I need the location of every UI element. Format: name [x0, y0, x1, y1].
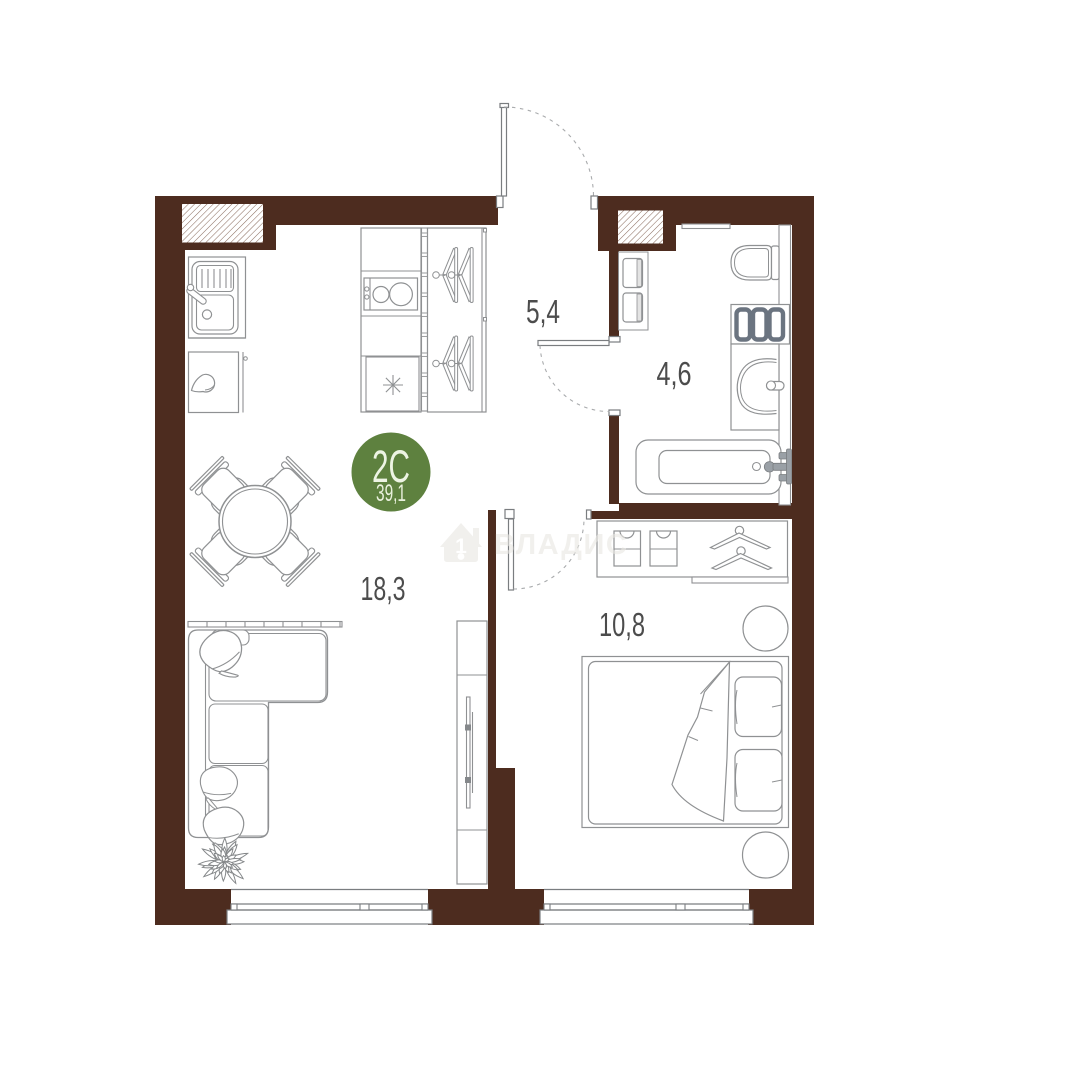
- svg-text:39,1: 39,1: [376, 480, 406, 507]
- svg-text:18,3: 18,3: [361, 570, 406, 607]
- svg-text:10,8: 10,8: [599, 606, 645, 643]
- svg-text:4,6: 4,6: [657, 355, 692, 392]
- svg-text:5,4: 5,4: [526, 293, 560, 330]
- svg-text:ВЛАДИС: ВЛАДИС: [494, 529, 630, 561]
